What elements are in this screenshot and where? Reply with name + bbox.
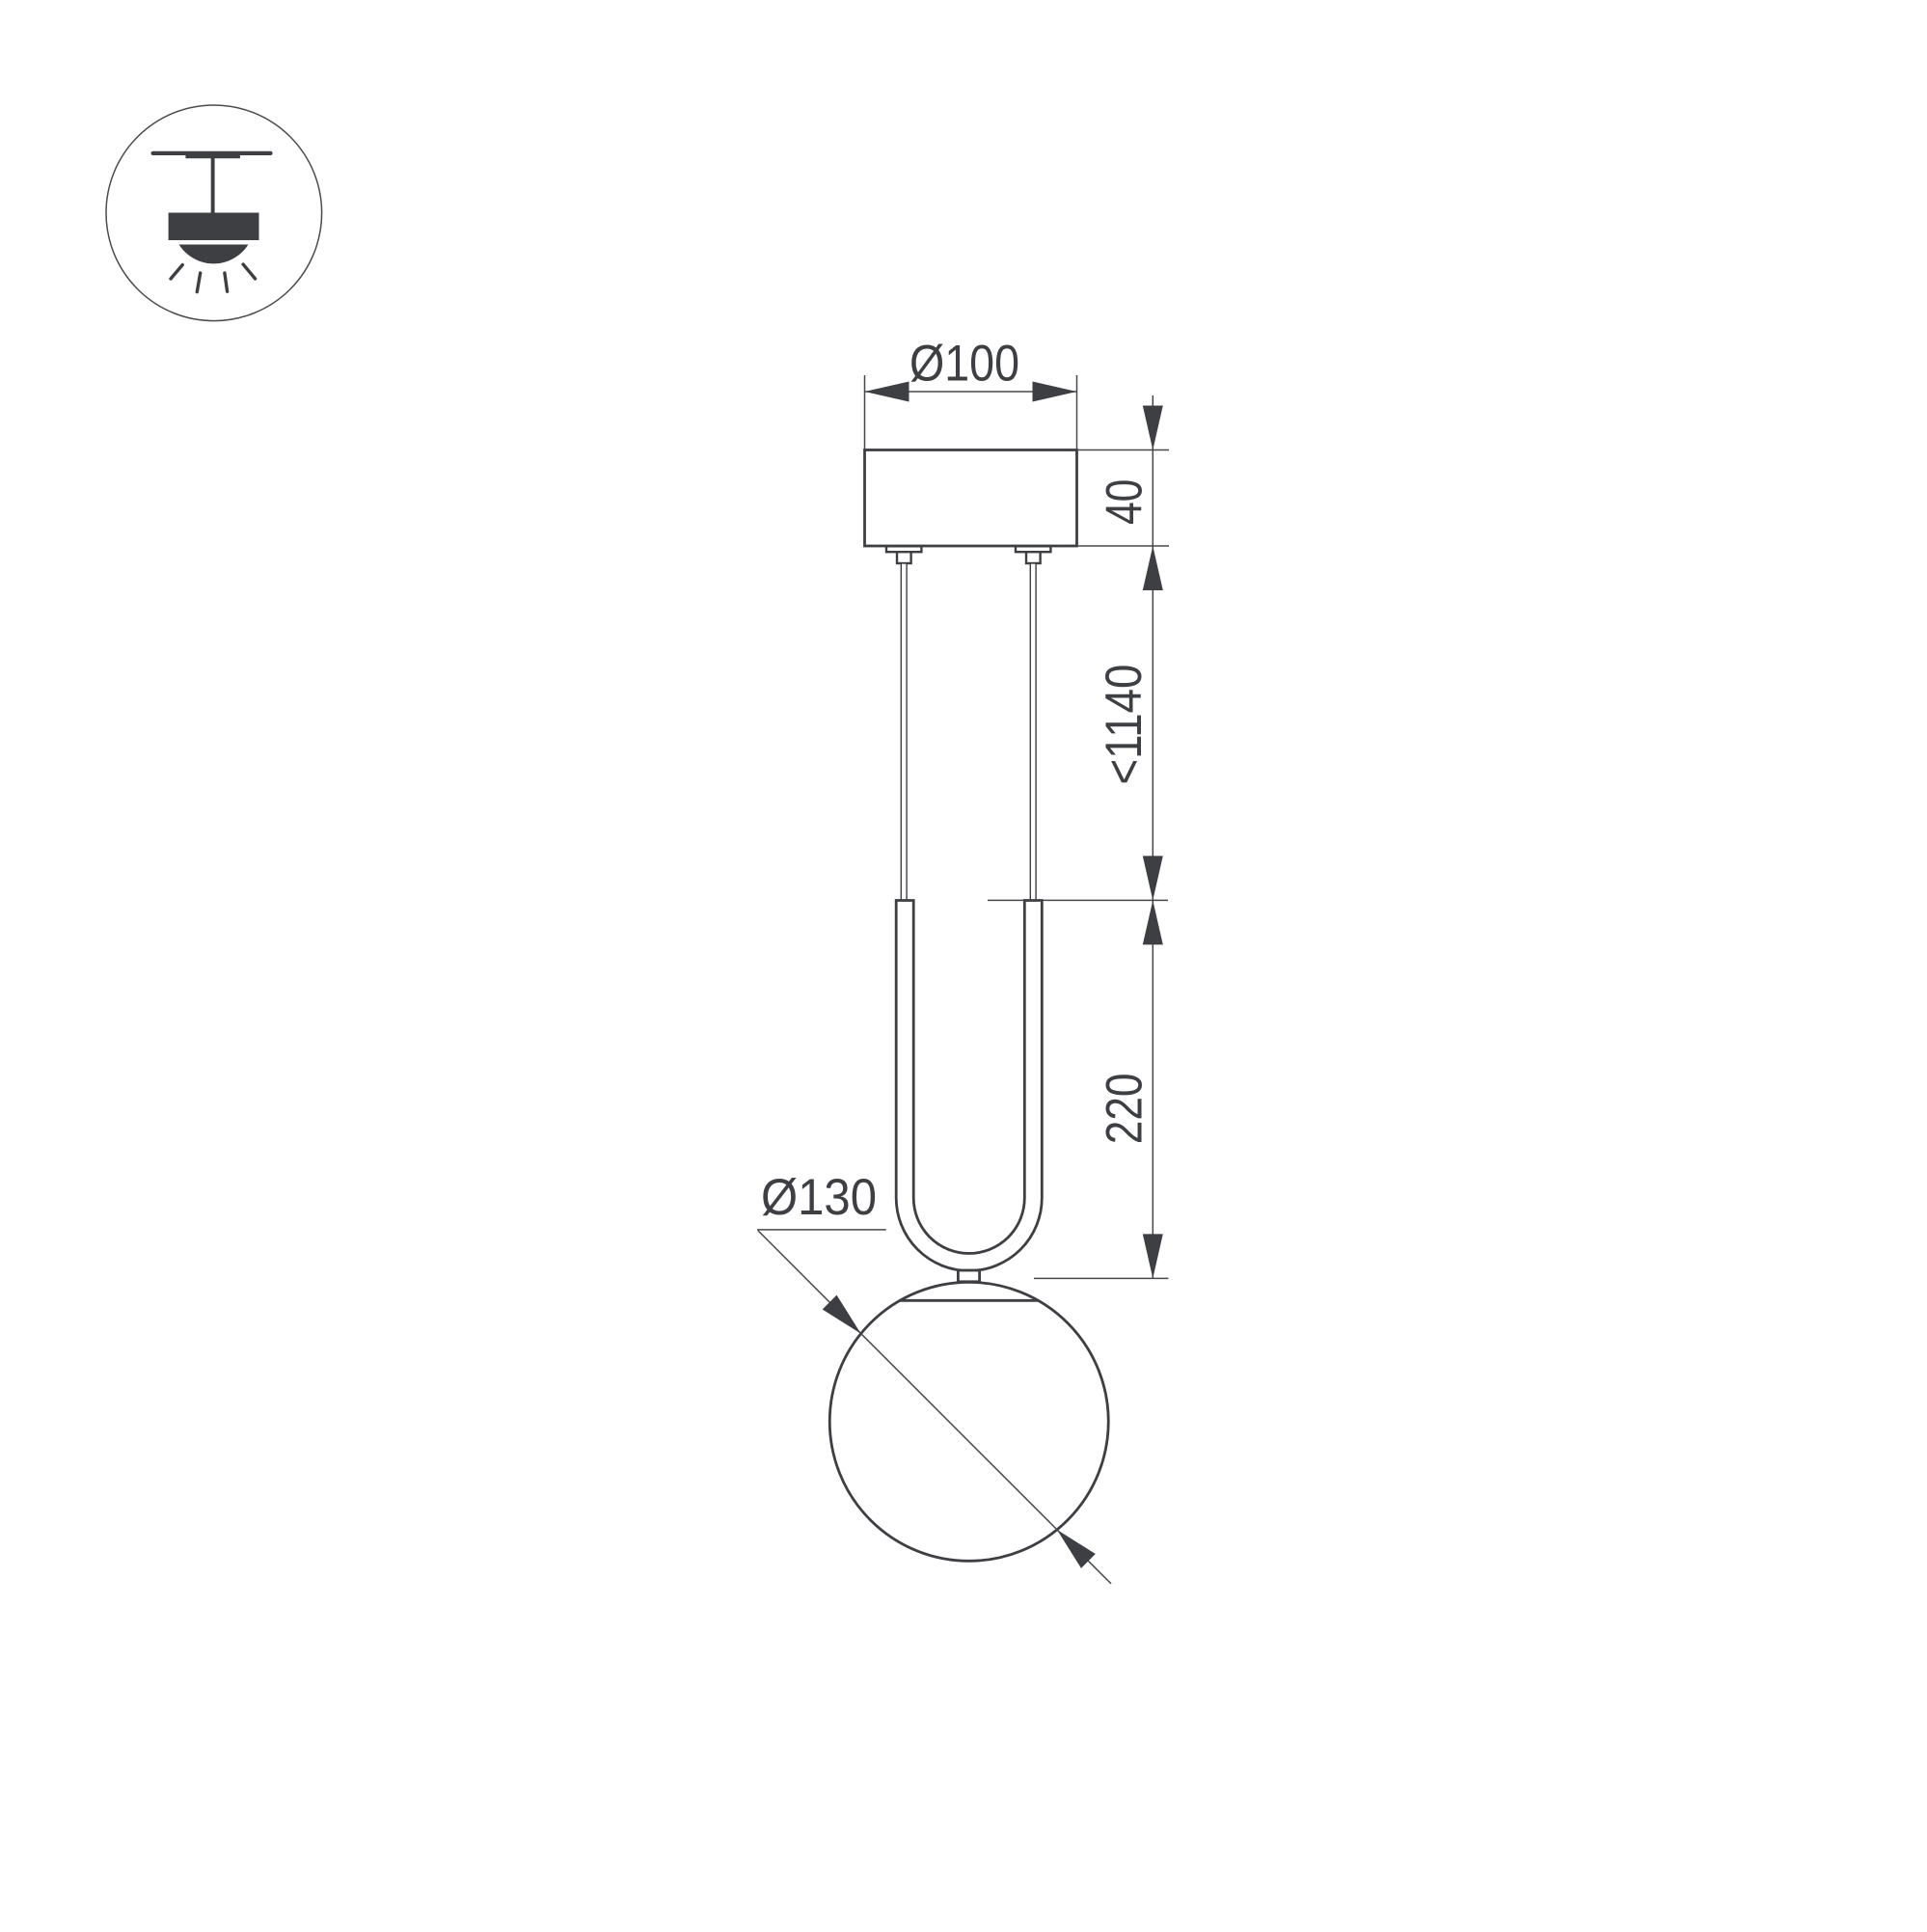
svg-text:40: 40 [1096, 479, 1153, 525]
svg-text:Ø130: Ø130 [761, 1169, 877, 1226]
svg-text:Ø100: Ø100 [909, 335, 1019, 392]
svg-text:220: 220 [1096, 1074, 1153, 1145]
svg-text:<1140: <1140 [1096, 665, 1153, 785]
